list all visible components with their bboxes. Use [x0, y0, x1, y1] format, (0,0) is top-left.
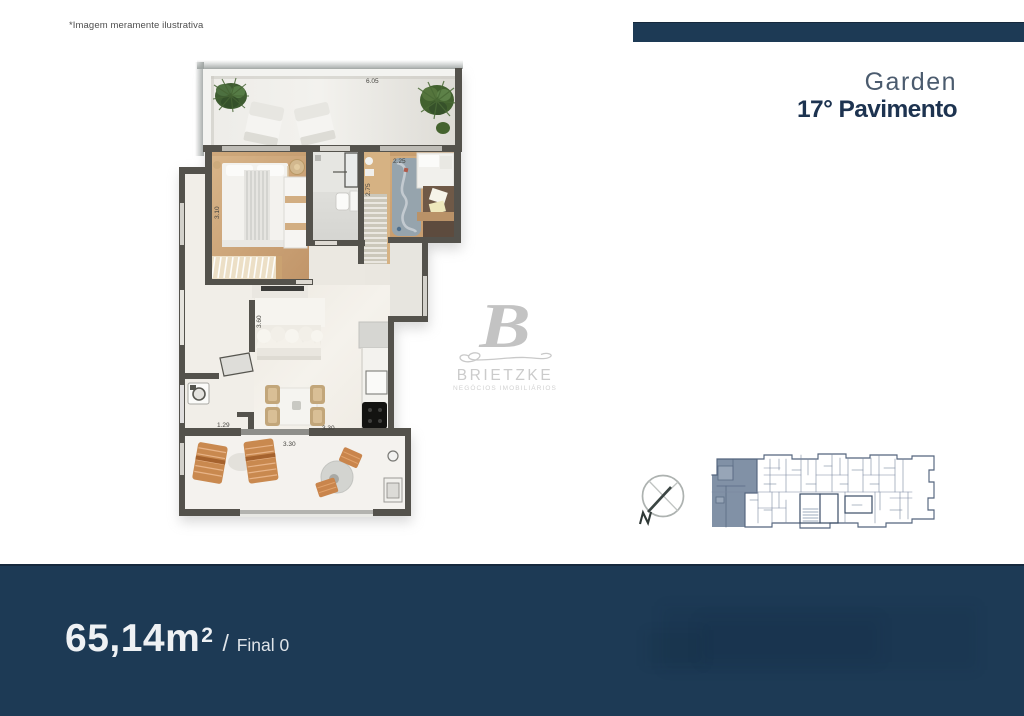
svg-text:2.25: 2.25	[393, 158, 406, 165]
svg-text:3.30: 3.30	[283, 441, 296, 448]
svg-text:1.29: 1.29	[217, 422, 230, 429]
svg-text:3.60: 3.60	[256, 315, 263, 328]
svg-text:6.05: 6.05	[366, 78, 379, 85]
svg-text:2.75: 2.75	[365, 183, 372, 196]
svg-text:3.10: 3.10	[214, 206, 221, 219]
svg-text:3.30: 3.30	[322, 425, 335, 432]
